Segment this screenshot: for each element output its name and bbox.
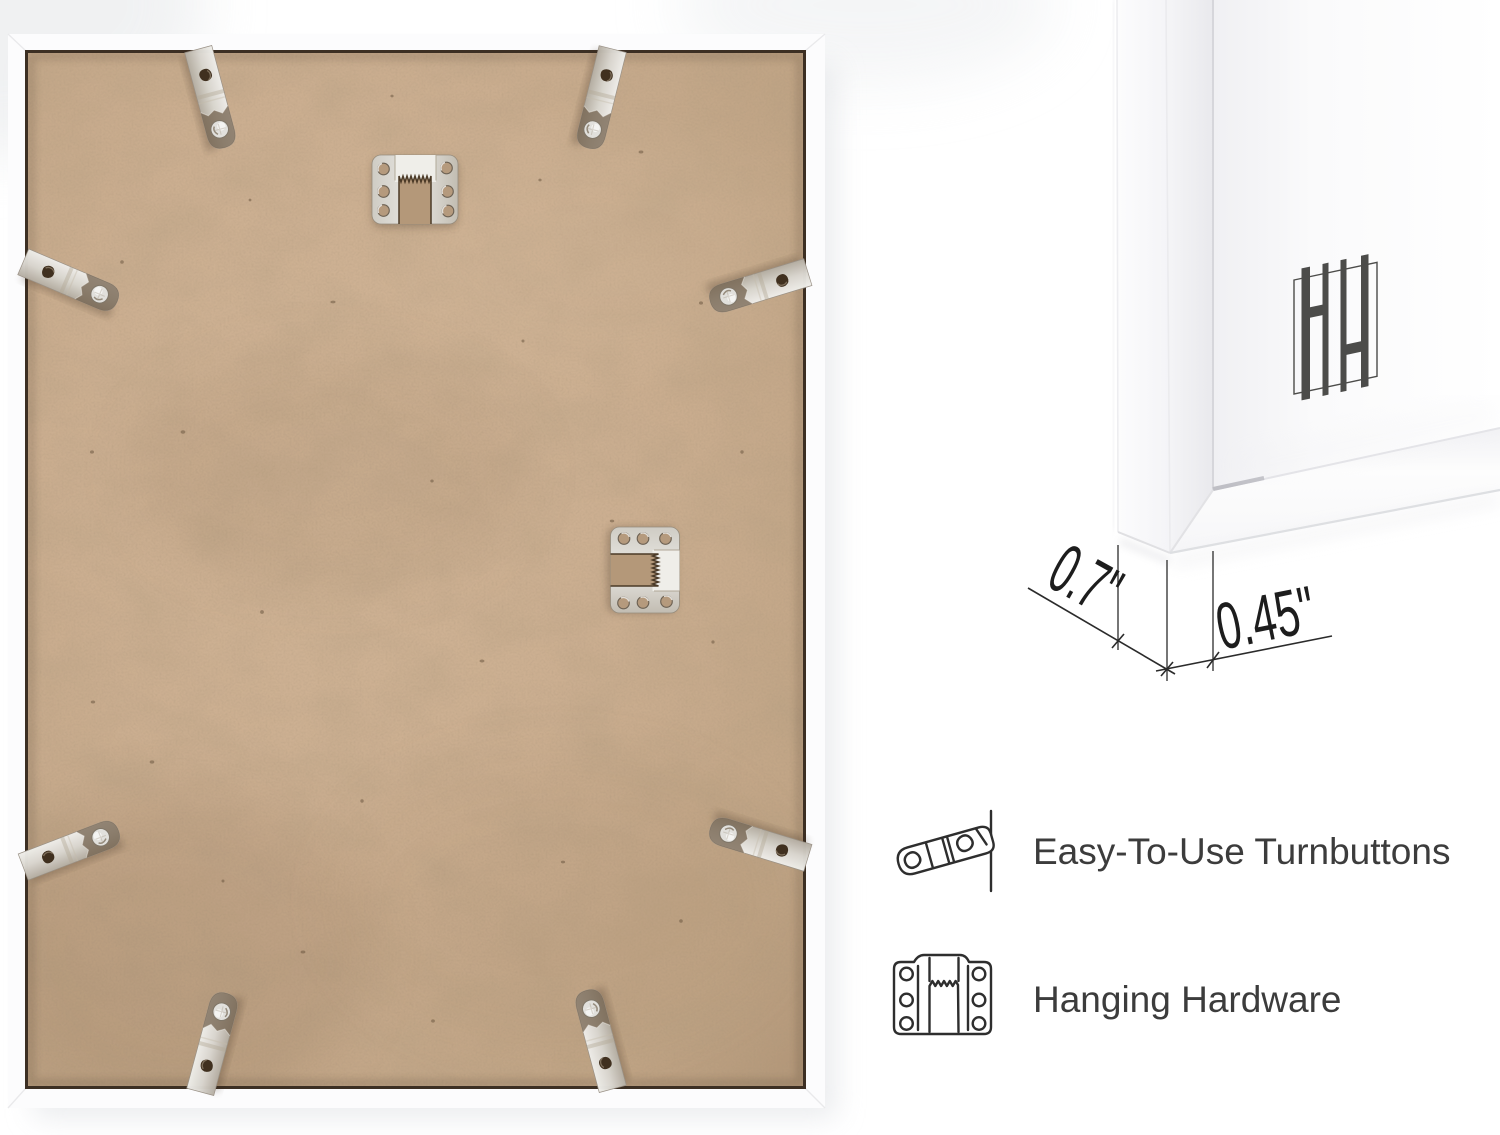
svg-text:Easy-To-Use Turnbuttons: Easy-To-Use Turnbuttons — [1033, 831, 1450, 872]
svg-text:Hanging Hardware: Hanging Hardware — [1033, 979, 1342, 1020]
